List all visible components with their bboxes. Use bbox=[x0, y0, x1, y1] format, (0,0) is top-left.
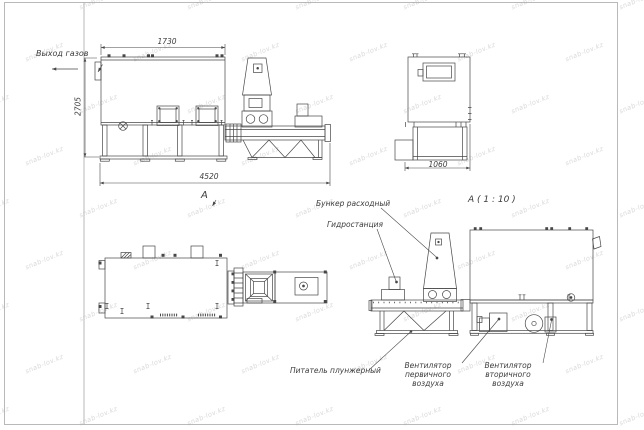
gas-outlet-stub bbox=[95, 62, 103, 80]
dim-overall-length-text: 4520 bbox=[192, 172, 226, 181]
view-a-marker: А bbox=[201, 190, 208, 201]
secondary-fan-label-line2: вторичного воздуха bbox=[469, 370, 547, 388]
view-a-hopper bbox=[424, 233, 457, 302]
secondary-air-fan bbox=[525, 315, 556, 333]
plunger-feeder-label: Питатель плунжерный bbox=[290, 366, 381, 375]
furnace-body bbox=[101, 57, 225, 125]
leader-feed-hopper bbox=[381, 208, 437, 257]
furnace-base-frame bbox=[100, 125, 227, 161]
primary-fan-label: Вентилятор первичного воздуха bbox=[391, 361, 465, 388]
view-a-furnace-body bbox=[470, 227, 601, 301]
drawing-sheet: snab-lov.kzsnab-lov.kzsnab-lov.kzsnab-lo… bbox=[0, 0, 644, 430]
front-base bbox=[413, 127, 467, 160]
front-view bbox=[395, 54, 472, 172]
view-a-title: А ( 1 : 10 ) bbox=[468, 195, 516, 206]
dim-2705 bbox=[84, 58, 99, 157]
dim-front-width-text: 1060 bbox=[421, 160, 455, 169]
pedestal bbox=[295, 104, 322, 127]
secondary-fan-label-line1: Вентилятор bbox=[469, 361, 547, 370]
plan-bolts bbox=[99, 254, 223, 319]
hydraulic-station-label: Гидростанция bbox=[327, 220, 383, 229]
plan-hatch-strip bbox=[121, 253, 131, 259]
flange-port bbox=[119, 122, 128, 131]
hopper-tower bbox=[242, 58, 272, 127]
front-side-box bbox=[395, 140, 413, 160]
leader-primary-fan bbox=[462, 320, 499, 364]
primary-fan-label-line1: Вентилятор bbox=[391, 361, 465, 370]
feed-hopper-label: Бункер расходный bbox=[316, 199, 390, 208]
view-a-truss bbox=[375, 311, 458, 336]
leader-secondary-fan bbox=[543, 321, 552, 364]
front-studs bbox=[406, 122, 467, 127]
secondary-fan-label: Вентилятор вторичного воздуха bbox=[469, 361, 547, 388]
feeder-truss bbox=[243, 140, 322, 160]
plan-center-marks bbox=[106, 261, 219, 314]
dim-top-length-text: 1730 bbox=[150, 37, 184, 46]
leader-hydraulic bbox=[377, 229, 396, 281]
view-a-arrow bbox=[213, 200, 217, 206]
dim-overall-height-text: 2705 bbox=[74, 90, 83, 124]
main-side-view bbox=[52, 44, 331, 206]
leader-lines bbox=[369, 208, 552, 370]
gas-outlet-label: Выход газов bbox=[36, 49, 88, 59]
section-view-a bbox=[369, 208, 601, 370]
plan-view bbox=[99, 246, 328, 319]
plan-feeder-assembly bbox=[228, 268, 327, 306]
primary-air-fan bbox=[477, 313, 507, 332]
plan-body bbox=[105, 258, 227, 318]
view-a-hydraulic-station bbox=[382, 277, 405, 300]
primary-fan-label-line2: первичного воздуха bbox=[391, 370, 465, 388]
vent-flag bbox=[593, 237, 602, 250]
front-body bbox=[408, 57, 470, 122]
